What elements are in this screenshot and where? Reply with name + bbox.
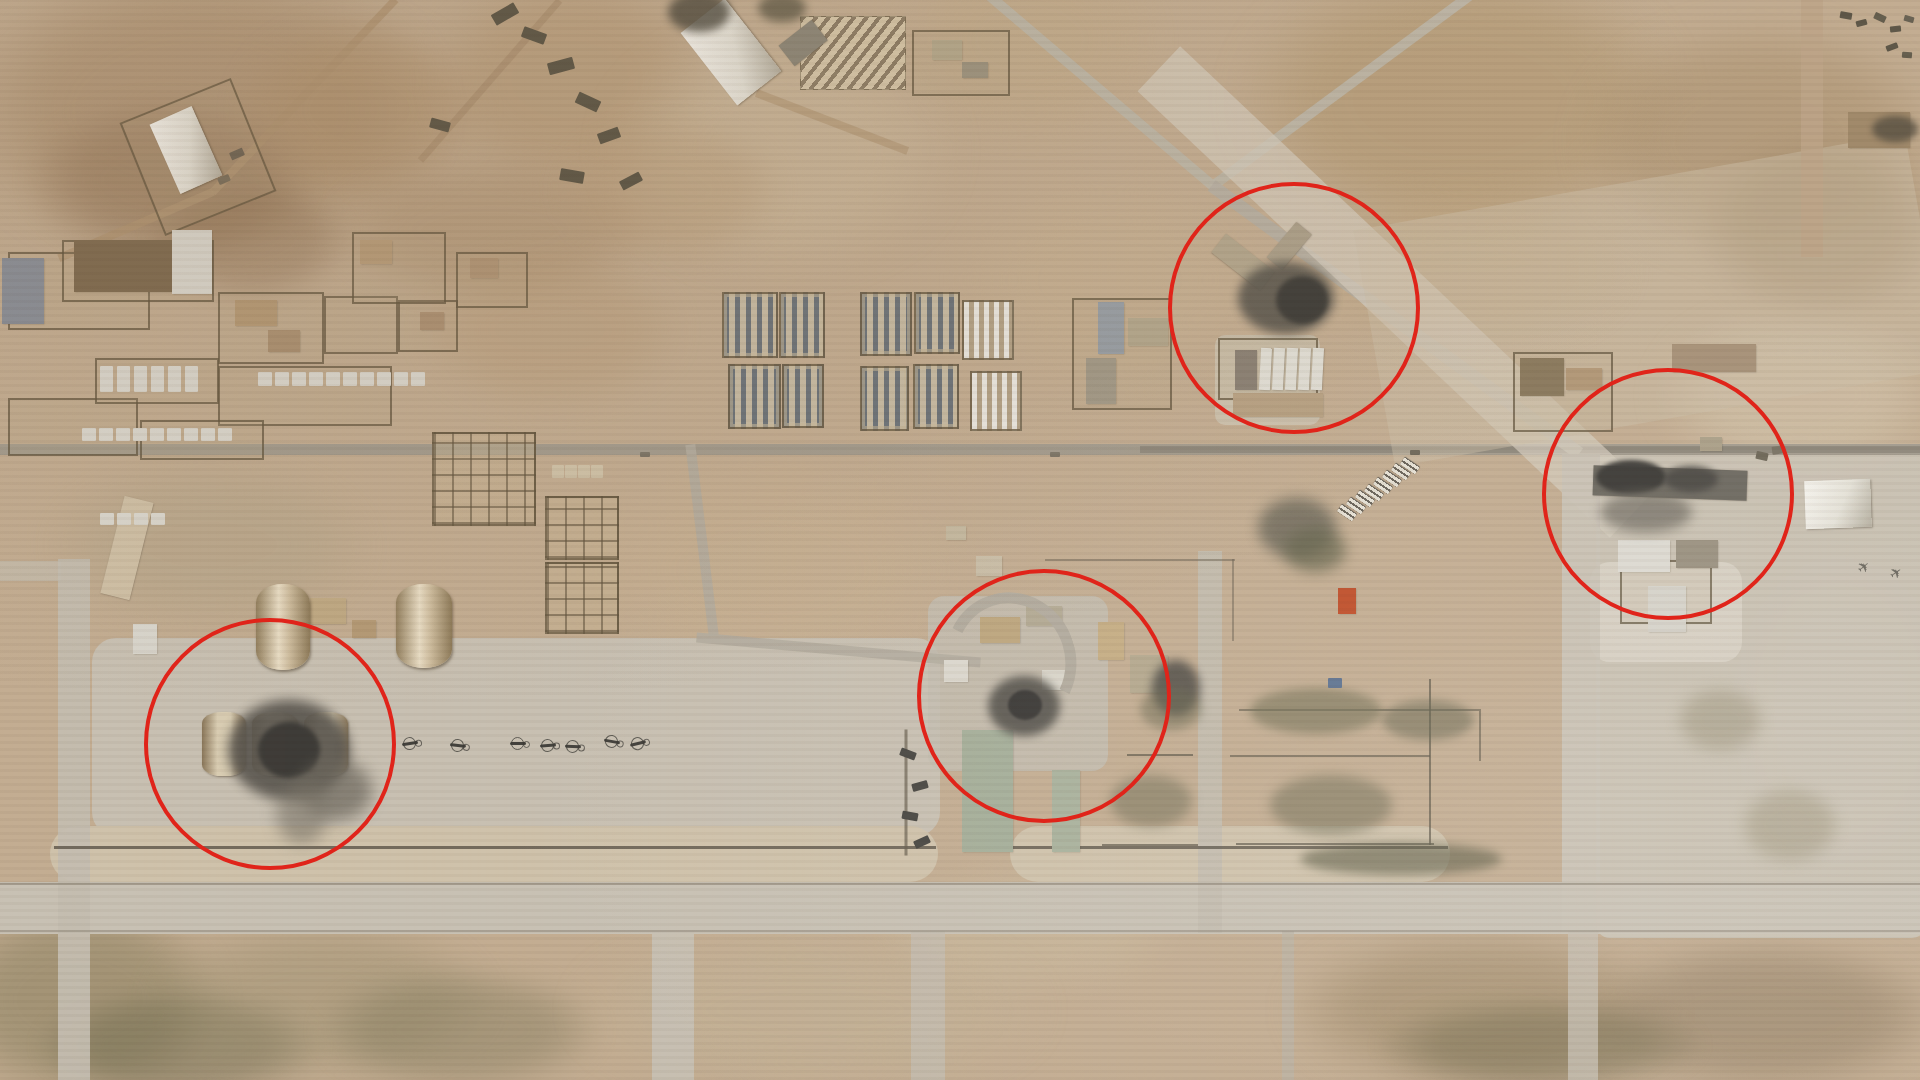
- building: [932, 40, 962, 60]
- helicopter-icon: [540, 743, 556, 747]
- ground-object: [218, 428, 232, 441]
- building: [310, 598, 346, 624]
- boundary-line: [1045, 559, 1235, 561]
- tent-block: [722, 292, 778, 358]
- ground-object: [134, 366, 147, 392]
- ground-object: [552, 465, 564, 478]
- ground-object: [1873, 12, 1887, 23]
- ground-object: [1839, 11, 1852, 20]
- ground-object: [133, 428, 147, 441]
- ground-object: [150, 428, 164, 441]
- ground-object: [360, 372, 374, 386]
- road: [1282, 931, 1294, 1080]
- revetment-grid: [432, 432, 536, 526]
- building: [962, 62, 988, 78]
- helicopter-icon: [510, 742, 526, 745]
- road: [58, 559, 90, 1080]
- tent-block: [962, 300, 1014, 360]
- building: [2, 258, 44, 324]
- ground-object: [1890, 26, 1901, 33]
- building: [1086, 358, 1116, 404]
- helicopter-icon: [450, 743, 466, 748]
- ground-object: [326, 372, 340, 386]
- ground-object: [117, 513, 131, 525]
- annotation-circle-north-strike-area: [1168, 182, 1420, 434]
- boundary-line: [0, 883, 1920, 885]
- road: [1801, 0, 1823, 257]
- building: [1804, 479, 1872, 529]
- tent-block: [860, 366, 909, 431]
- ground-object: [116, 428, 130, 441]
- ground-object: [640, 452, 650, 457]
- ground-object: [1050, 452, 1060, 457]
- building: [1520, 358, 1564, 396]
- building: [1128, 318, 1168, 346]
- tent-block: [782, 364, 824, 428]
- annotation-circle-east-strike-area: [1542, 368, 1794, 620]
- tent-block: [860, 292, 912, 356]
- tent-block: [970, 371, 1022, 431]
- blast-damage-mark: [758, 0, 806, 22]
- ground-object: [591, 465, 603, 478]
- building: [1098, 302, 1124, 354]
- ground-object: [1903, 15, 1914, 23]
- terrain-patch: [1380, 1000, 1700, 1080]
- terrain-patch: [320, 970, 600, 1080]
- road: [0, 561, 61, 581]
- blast-damage-mark: [1284, 528, 1346, 572]
- ground-object: [82, 428, 96, 441]
- ground-object: [151, 366, 164, 392]
- building: [420, 312, 444, 330]
- ground-object: [565, 465, 577, 478]
- road: [652, 931, 694, 1080]
- blast-damage-mark: [1872, 116, 1918, 142]
- boundary-line: [0, 930, 1920, 932]
- building: [133, 624, 157, 654]
- ground-object: [100, 366, 113, 392]
- road: [911, 931, 945, 1080]
- building: [976, 556, 1002, 576]
- blast-damage-mark: [1745, 790, 1835, 860]
- ground-object: [100, 513, 114, 525]
- tent-block: [914, 292, 960, 354]
- ground-object: [167, 428, 181, 441]
- ground-object: [185, 366, 198, 392]
- ground-object: [117, 366, 130, 392]
- ground-object: [99, 428, 113, 441]
- helicopter-icon: [630, 740, 646, 747]
- ground-object: [1410, 450, 1420, 455]
- building: [352, 620, 376, 638]
- revetment-grid: [545, 496, 619, 560]
- compound-wall: [324, 296, 398, 354]
- boundary-line: [54, 846, 936, 849]
- blast-damage-mark: [1680, 690, 1760, 750]
- boundary-line: [1232, 559, 1234, 641]
- blast-damage-mark: [1270, 775, 1392, 835]
- building: [74, 240, 174, 292]
- building: [268, 330, 300, 352]
- ground-object: [1885, 42, 1898, 52]
- road: [1568, 931, 1598, 1080]
- ground-object: [1328, 678, 1342, 688]
- tent-block: [913, 364, 959, 429]
- ground-object: [168, 366, 181, 392]
- ground-object: [343, 372, 357, 386]
- ground-object: [1855, 19, 1867, 28]
- ground-object: [275, 372, 289, 386]
- building: [360, 240, 392, 264]
- ground-object: [151, 513, 165, 525]
- annotation-circle-center-strike-area: [917, 569, 1171, 823]
- ground-object: [377, 372, 391, 386]
- blast-damage-mark: [1382, 700, 1474, 740]
- building: [235, 300, 277, 326]
- building: [172, 230, 212, 294]
- building: [470, 258, 498, 278]
- building: [946, 526, 966, 540]
- ground-object: [134, 513, 148, 525]
- ground-object: [411, 372, 425, 386]
- road: [1198, 551, 1222, 933]
- terrain-patch: [560, 120, 780, 260]
- ground-object: [578, 465, 590, 478]
- ground-object: [394, 372, 408, 386]
- boundary-line: [1102, 844, 1198, 846]
- helicopter-icon: [402, 741, 418, 746]
- ground-object: [1902, 52, 1912, 59]
- compound-wall: [8, 398, 138, 456]
- ground-object: [258, 372, 272, 386]
- tent-block: [779, 292, 825, 358]
- ground-object: [292, 372, 306, 386]
- boundary-line: [1230, 755, 1430, 757]
- ground-object: [184, 428, 198, 441]
- satellite-image-airbase: ✈✈: [0, 0, 1920, 1080]
- building: [1338, 588, 1356, 614]
- helicopter-icon: [565, 745, 581, 749]
- revetment-grid: [545, 562, 619, 634]
- ground-object: [309, 372, 323, 386]
- ground-object: [201, 428, 215, 441]
- blast-damage-mark: [1250, 688, 1382, 734]
- dome-hangar: [396, 584, 452, 668]
- annotation-circle-west-strike-area: [144, 618, 396, 870]
- helicopter-icon: [604, 739, 620, 745]
- building: [1672, 344, 1756, 372]
- boundary-line: [1479, 711, 1481, 761]
- building: [1566, 368, 1602, 390]
- tent-block: [728, 364, 781, 429]
- blast-damage-mark: [1300, 843, 1502, 875]
